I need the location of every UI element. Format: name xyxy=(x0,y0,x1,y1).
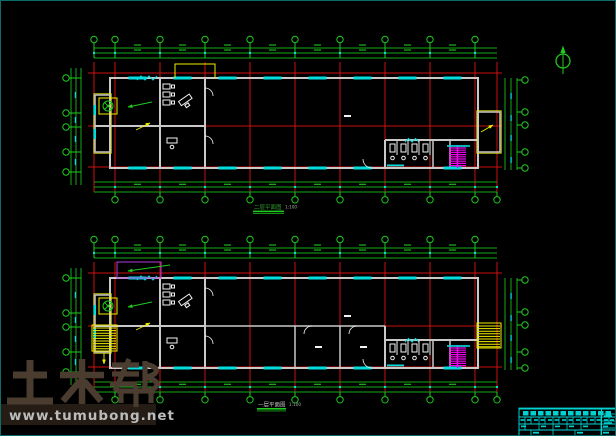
cad-drawing-svg: 二层平面图 1:100 一层平面图 1:100 www.tumubong.net xyxy=(0,0,616,436)
floor-plan-upper xyxy=(63,36,528,203)
plan-caption-upper: 二层平面图 1:100 xyxy=(253,203,297,214)
cad-drawing-canvas: 二层平面图 1:100 一层平面图 1:100 www.tumubong.net xyxy=(0,0,616,436)
watermark-brand xyxy=(7,359,157,407)
plan-scale-lower: 1:100 xyxy=(289,402,301,407)
plan-scale-upper: 1:100 xyxy=(285,205,297,210)
caption-underline-thin xyxy=(257,411,286,412)
caption-underline-thin xyxy=(253,213,284,214)
caption-underline xyxy=(257,408,286,410)
north-arrow-icon xyxy=(556,46,570,75)
caption-underline xyxy=(253,211,284,213)
floor-plan-lower xyxy=(63,236,528,403)
title-block xyxy=(519,408,616,436)
plan-title-lower: 一层平面图 xyxy=(258,401,286,409)
plan-title-upper: 二层平面图 xyxy=(254,203,282,211)
watermark-url: www.tumubong.net xyxy=(9,408,175,424)
plan-caption-lower: 一层平面图 1:100 xyxy=(257,401,301,412)
